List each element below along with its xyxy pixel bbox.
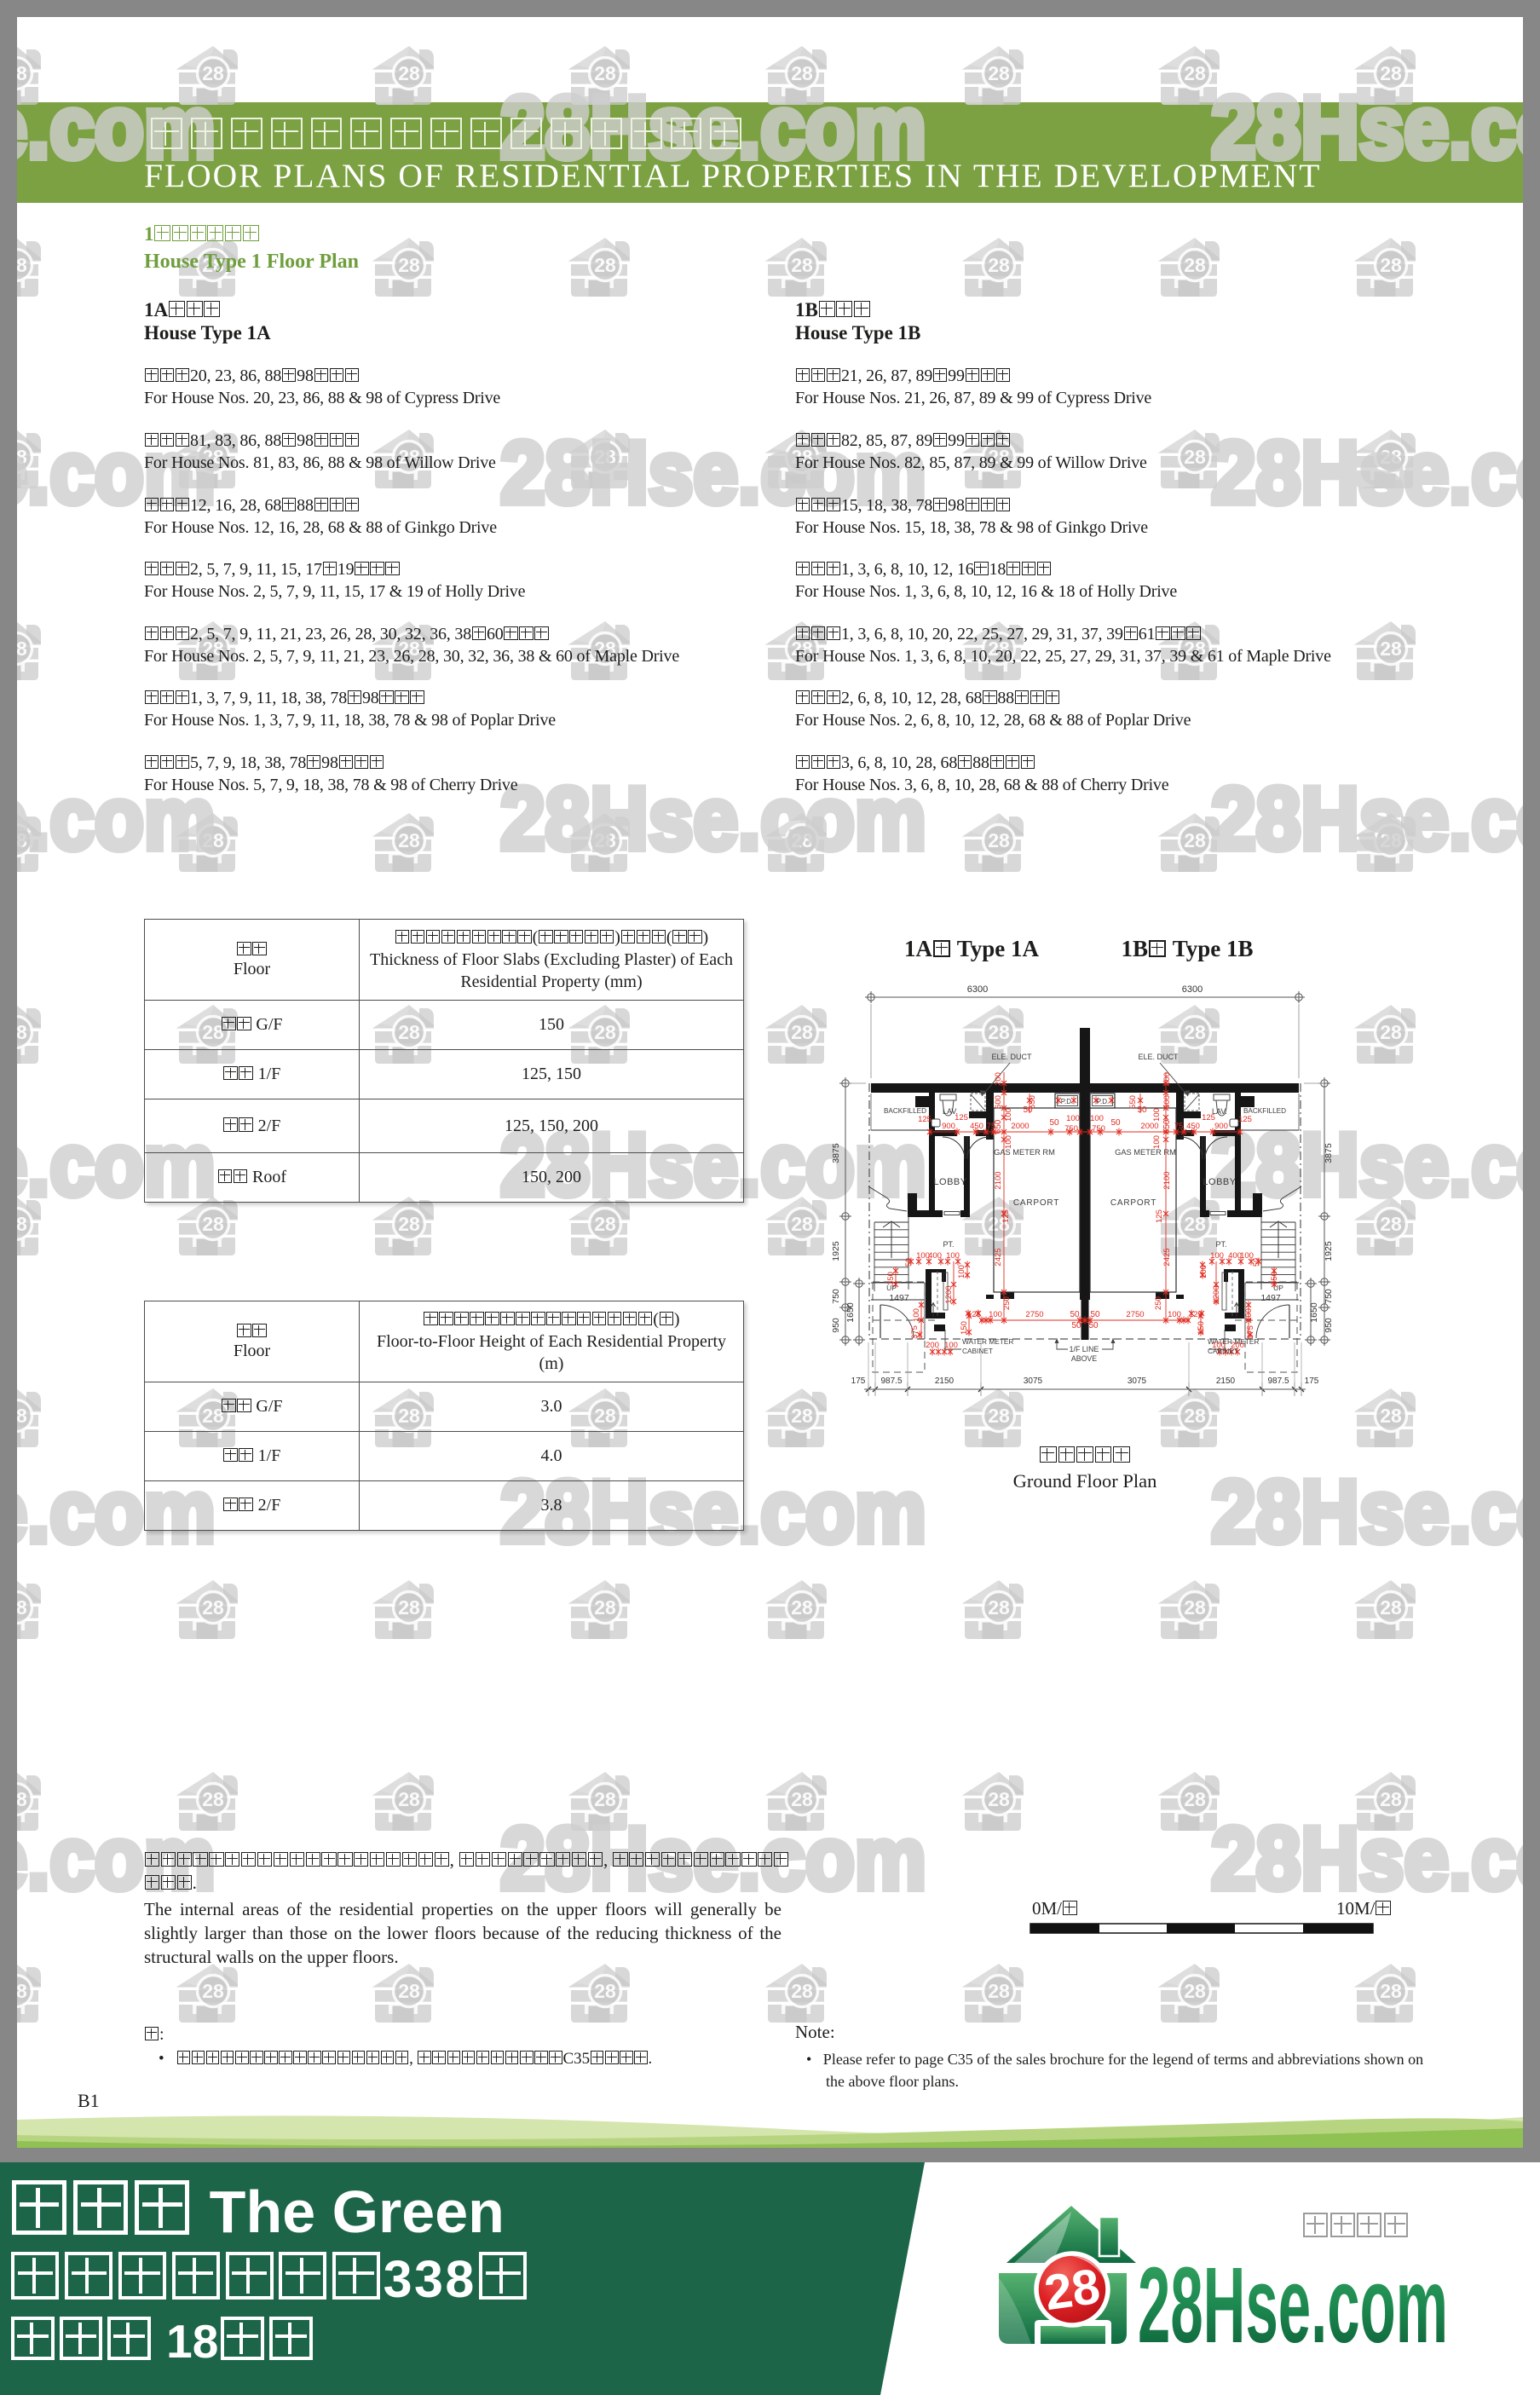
svg-text:100: 100 xyxy=(1240,1251,1254,1261)
svg-text:1925: 1925 xyxy=(831,1241,841,1261)
svg-text:750: 750 xyxy=(1064,1124,1078,1134)
svg-text:LOBBY: LOBBY xyxy=(1203,1177,1236,1187)
svg-text:125: 125 xyxy=(1238,1115,1252,1124)
svg-text:100: 100 xyxy=(1210,1251,1224,1261)
svg-text:CARPORT: CARPORT xyxy=(1110,1198,1156,1208)
svg-text:100: 100 xyxy=(1199,1265,1208,1278)
svg-text:1/F LINE: 1/F LINE xyxy=(1070,1345,1099,1353)
svg-text:BACKFILLED: BACKFILLED xyxy=(884,1107,926,1115)
svg-text:375: 375 xyxy=(910,1325,920,1339)
svg-text:LOBBY: LOBBY xyxy=(933,1177,966,1187)
svg-text:950: 950 xyxy=(1324,1318,1334,1333)
svg-text:150: 150 xyxy=(960,1321,969,1335)
svg-text:P.D.: P.D. xyxy=(1061,1098,1074,1105)
svg-text:125: 125 xyxy=(1155,1209,1164,1223)
svg-text:400: 400 xyxy=(1228,1251,1242,1261)
svg-text:350: 350 xyxy=(1270,1272,1279,1285)
svg-text:100: 100 xyxy=(1066,1114,1080,1123)
svg-text:100: 100 xyxy=(1152,1108,1162,1122)
svg-text:550: 550 xyxy=(1128,1095,1138,1109)
svg-text:BACKFILLED: BACKFILLED xyxy=(1243,1107,1286,1115)
svg-text:987.5: 987.5 xyxy=(880,1376,902,1386)
svg-text:450: 450 xyxy=(1186,1122,1200,1131)
svg-text:1200: 1200 xyxy=(944,1285,954,1303)
svg-text:400: 400 xyxy=(928,1251,942,1261)
svg-text:PT.: PT. xyxy=(1215,1240,1226,1249)
svg-text:175: 175 xyxy=(1305,1376,1319,1386)
svg-text:900: 900 xyxy=(942,1122,955,1131)
svg-text:3075: 3075 xyxy=(1024,1376,1043,1386)
svg-text:600: 600 xyxy=(994,1095,1003,1109)
svg-text:100: 100 xyxy=(957,1265,966,1278)
svg-text:2100: 2100 xyxy=(1162,1171,1172,1189)
svg-text:250: 250 xyxy=(1154,1296,1163,1310)
svg-text:1497: 1497 xyxy=(889,1293,909,1303)
svg-text:50: 50 xyxy=(1049,1118,1059,1128)
svg-text:3875: 3875 xyxy=(1324,1143,1334,1163)
svg-text:2000: 2000 xyxy=(1140,1122,1158,1131)
svg-text:100: 100 xyxy=(946,1251,960,1261)
svg-text:2750: 2750 xyxy=(1025,1310,1043,1319)
svg-text:100: 100 xyxy=(1090,1114,1104,1123)
svg-text:P.D.: P.D. xyxy=(1097,1098,1110,1105)
svg-text:1650: 1650 xyxy=(1309,1302,1319,1323)
svg-text:650: 650 xyxy=(994,1119,1003,1134)
svg-text:125: 125 xyxy=(918,1115,931,1124)
svg-text:6300: 6300 xyxy=(1182,984,1203,995)
svg-text:50: 50 xyxy=(1110,1118,1121,1128)
svg-text:2100: 2100 xyxy=(994,1171,1003,1189)
svg-text:375: 375 xyxy=(1246,1325,1255,1339)
svg-text:125: 125 xyxy=(1001,1209,1011,1223)
svg-text:100: 100 xyxy=(989,1310,1002,1319)
svg-text:125: 125 xyxy=(1189,1310,1203,1319)
svg-text:200: 200 xyxy=(1162,1072,1172,1086)
svg-text:100: 100 xyxy=(944,1341,958,1350)
svg-text:150: 150 xyxy=(1197,1321,1206,1335)
svg-text:ELE. DUCT: ELE. DUCT xyxy=(1138,1053,1179,1061)
svg-text:900: 900 xyxy=(1214,1122,1228,1131)
svg-text:100: 100 xyxy=(1004,1108,1013,1122)
svg-text:100: 100 xyxy=(1168,1310,1181,1319)
svg-text:50: 50 xyxy=(1137,1105,1147,1115)
svg-text:WATER METER: WATER METER xyxy=(962,1337,1013,1346)
svg-text:1497: 1497 xyxy=(1260,1293,1281,1303)
svg-text:ABOVE: ABOVE xyxy=(1071,1354,1097,1363)
svg-text:1650: 1650 xyxy=(845,1302,856,1323)
svg-text:28Hse.com: 28Hse.com xyxy=(1138,2245,1448,2357)
svg-text:CABINET: CABINET xyxy=(962,1347,993,1355)
svg-text:100: 100 xyxy=(1152,1135,1162,1149)
svg-text:GAS METER RM: GAS METER RM xyxy=(1115,1148,1176,1157)
svg-text:28: 28 xyxy=(1041,2259,1104,2321)
svg-text:175: 175 xyxy=(851,1376,866,1386)
svg-text:1200: 1200 xyxy=(1212,1285,1221,1303)
svg-text:50: 50 xyxy=(1071,1321,1081,1330)
svg-text:6300: 6300 xyxy=(967,984,988,995)
svg-text:250: 250 xyxy=(1002,1296,1012,1310)
svg-text:650: 650 xyxy=(1162,1119,1172,1134)
svg-text:750: 750 xyxy=(1324,1289,1334,1304)
svg-text:200: 200 xyxy=(1231,1341,1244,1350)
svg-text:50: 50 xyxy=(1023,1105,1033,1115)
svg-text:28Hse.com: 28Hse.com xyxy=(1211,1809,1523,1908)
svg-text:987.5: 987.5 xyxy=(1267,1376,1289,1386)
svg-text:2425: 2425 xyxy=(1162,1248,1172,1266)
svg-text:125: 125 xyxy=(1202,1113,1215,1122)
svg-text:GAS METER RM: GAS METER RM xyxy=(994,1148,1055,1157)
svg-text:2425: 2425 xyxy=(994,1248,1003,1266)
svg-text:PT.: PT. xyxy=(943,1240,954,1249)
svg-text:3875: 3875 xyxy=(831,1143,841,1163)
svg-text:600: 600 xyxy=(1162,1095,1172,1109)
svg-text:3075: 3075 xyxy=(1128,1376,1147,1386)
svg-text:50: 50 xyxy=(1090,1310,1100,1319)
svg-text:50: 50 xyxy=(904,1258,913,1267)
svg-text:100: 100 xyxy=(1004,1135,1013,1149)
svg-text:200: 200 xyxy=(994,1072,1003,1086)
svg-text:950: 950 xyxy=(831,1318,841,1333)
svg-text:2150: 2150 xyxy=(935,1376,955,1386)
svg-text:50: 50 xyxy=(1088,1321,1099,1330)
svg-text:125: 125 xyxy=(967,1310,981,1319)
svg-text:2000: 2000 xyxy=(1011,1122,1029,1131)
svg-text:2150: 2150 xyxy=(1216,1376,1236,1386)
svg-text:2750: 2750 xyxy=(1126,1310,1144,1319)
svg-text:100: 100 xyxy=(912,1308,921,1322)
svg-text:50: 50 xyxy=(1070,1310,1080,1319)
svg-text:100: 100 xyxy=(1212,1341,1226,1350)
svg-text:75: 75 xyxy=(1174,1122,1184,1131)
svg-text:100: 100 xyxy=(1244,1308,1254,1322)
svg-text:750: 750 xyxy=(1092,1124,1105,1134)
svg-text:450: 450 xyxy=(970,1122,983,1131)
svg-text:28Hse.com: 28Hse.com xyxy=(1211,424,1523,522)
svg-text:350: 350 xyxy=(886,1272,896,1285)
svg-text:ELE. DUCT: ELE. DUCT xyxy=(991,1053,1032,1061)
svg-text:750: 750 xyxy=(831,1289,841,1304)
svg-text:125: 125 xyxy=(955,1113,968,1122)
svg-text:1925: 1925 xyxy=(1324,1241,1334,1261)
svg-text:28Hse.com: 28Hse.com xyxy=(1211,770,1523,869)
svg-text:CARPORT: CARPORT xyxy=(1013,1198,1059,1208)
svg-text:200: 200 xyxy=(926,1341,939,1350)
